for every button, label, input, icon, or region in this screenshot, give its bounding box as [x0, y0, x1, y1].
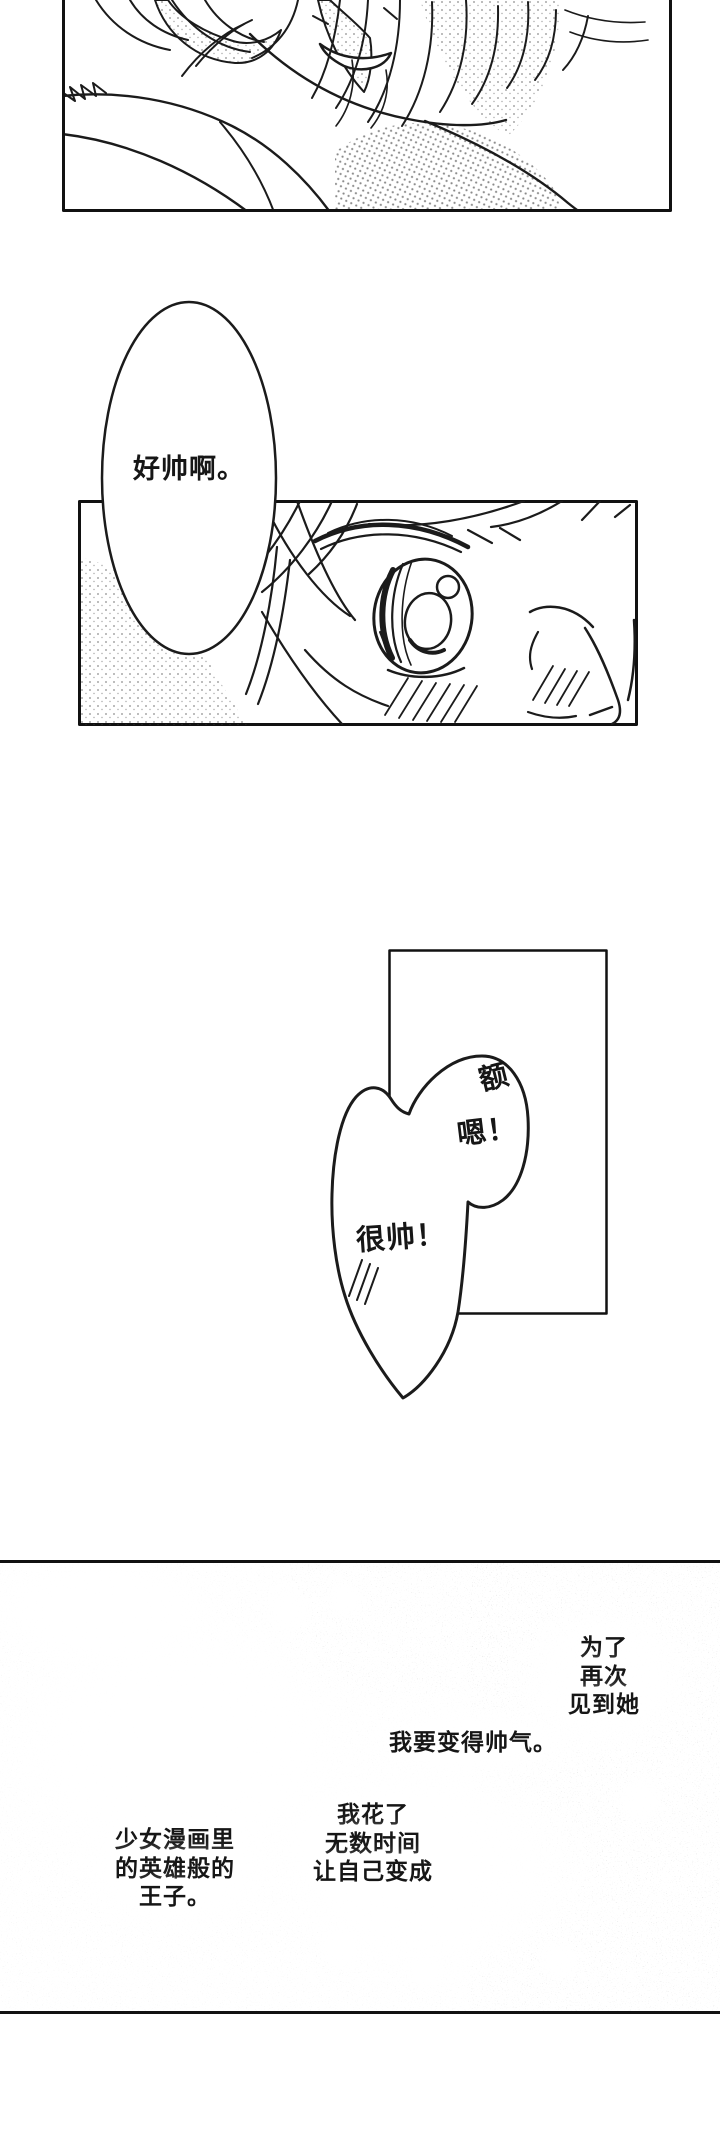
panel4-textured-background	[0, 1550, 720, 2012]
narration-prince-line3: 王子。	[74, 1883, 276, 1912]
narration-goal-line3: 见到她	[522, 1691, 686, 1720]
narration-goal-line2: 再次	[522, 1663, 686, 1692]
narration-prince-line1: 少女漫画里	[74, 1826, 276, 1855]
narration-prince-line2: 的英雄般的	[74, 1855, 276, 1884]
speech-text-admire: 好帅啊。	[89, 452, 289, 488]
narration-effort-line3: 让自己变成	[272, 1858, 474, 1887]
narration-effort-line1: 我花了	[272, 1801, 474, 1830]
narration-resolve: 我要变得帅气。	[343, 1729, 603, 1758]
narration-effort: 我花了 无数时间 让自己变成	[272, 1801, 474, 1887]
narration-goal: 为了 再次 见到她	[522, 1634, 686, 1720]
blush-hatching-right	[533, 666, 589, 706]
narration-effort-line2: 无数时间	[272, 1830, 474, 1859]
manga-page: 好帅啊。 额 嗯！ 很帅！ 为了 再次 见到她 我要变得帅气。 我花了 无数时间…	[0, 0, 720, 2144]
narration-goal-line1: 为了	[522, 1634, 686, 1663]
blush-hatching-left	[385, 678, 477, 722]
narration-prince: 少女漫画里 的英雄般的 王子。	[74, 1826, 276, 1912]
panel1-artwork-face-smile	[62, 0, 648, 212]
